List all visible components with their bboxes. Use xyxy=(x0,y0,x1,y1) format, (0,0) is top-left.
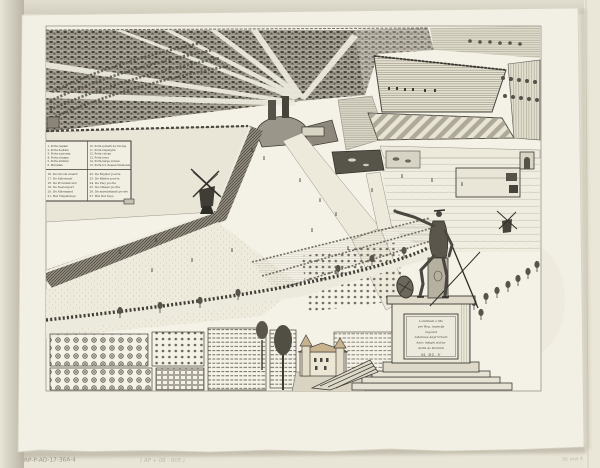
parterre-garden xyxy=(156,368,204,390)
svg-text:27. Het Dul huys: 27. Het Dul huys xyxy=(90,194,114,198)
svg-text:25. De Clissen poorte: 25. De Clissen poorte xyxy=(90,185,121,189)
orchard-plot xyxy=(50,334,148,366)
svg-text:dedit Ao Dominii: dedit Ao Dominii xyxy=(418,346,444,350)
svg-text:Londinum a Ma: Londinum a Ma xyxy=(418,319,443,323)
museum-scan: 1. Porta regiam 2. Porta hedram 3. Porta… xyxy=(0,0,600,468)
pedestal-base-molding xyxy=(383,362,479,372)
svg-text:per Reg. imperijs: per Reg. imperijs xyxy=(418,324,445,328)
legend-panel: 1. Porta regiam 2. Porta hedram 3. Porta… xyxy=(45,141,134,204)
svg-text:16. De Groote muerd: 16. De Groote muerd xyxy=(48,172,78,176)
pencil-inventory-number: RP-P-AO-17-36A-4 xyxy=(24,457,76,464)
svg-text:2. Porta hedram: 2. Porta hedram xyxy=(48,148,70,152)
monument-steps xyxy=(352,371,512,390)
svg-text:1. Porta regiam: 1. Porta regiam xyxy=(48,144,69,148)
svg-text:Iohannes Angl Vrbem: Iohannes Angl Vrbem xyxy=(414,335,448,339)
pedestal-shading xyxy=(460,303,470,363)
svg-text:regedat: regedat xyxy=(425,330,438,334)
svg-text:17. De Abberneyf: 17. De Abberneyf xyxy=(48,176,74,180)
svg-text:11. Porta bispelgrin: 11. Porta bispelgrin xyxy=(90,148,116,152)
svg-text:26. De maeckelandt poorte: 26. De maeckelandt poorte xyxy=(90,190,129,194)
fenced-enclosure xyxy=(456,168,520,197)
svg-text:14. Porta harge vicinal: 14. Porta harge vicinal xyxy=(90,159,120,163)
engraved-plate: 1. Porta regiam 2. Porta hedram 3. Porta… xyxy=(40,26,541,392)
gate-bridge xyxy=(302,127,324,136)
svg-text:24. De Vley poorte: 24. De Vley poorte xyxy=(90,181,117,185)
outbuilding xyxy=(47,117,59,128)
legend-corner-tab xyxy=(124,199,134,204)
orchard-plot xyxy=(50,368,152,390)
svg-text:20. De Abbemarst: 20. De Abbemarst xyxy=(48,190,74,194)
svg-text:18. De Providencerd: 18. De Providencerd xyxy=(48,181,77,185)
svg-text:12. Porta vulcan: 12. Porta vulcan xyxy=(90,152,112,156)
svg-text:hanc insigni statua: hanc insigni statua xyxy=(417,341,446,345)
orchard-plot-small xyxy=(152,332,204,366)
svg-text:10. Porta lysbeth de l'Gorge: 10. Porta lysbeth de l'Gorge xyxy=(90,144,127,148)
print-engraving: 1. Porta regiam 2. Porta hedram 3. Porta… xyxy=(0,0,600,468)
svg-text:5. Porta militum: 5. Porta militum xyxy=(48,159,70,163)
svg-text:22. De Reysler poorte: 22. De Reysler poorte xyxy=(90,172,121,176)
pencil-center-note: ( AP + 08 - 005 ) xyxy=(140,458,185,464)
small-gatehouse xyxy=(520,152,534,169)
svg-text:19. De Neeverport: 19. De Neeverport xyxy=(48,185,75,189)
statue-cap xyxy=(434,210,445,211)
svg-text:6. Murallen: 6. Murallen xyxy=(48,163,64,167)
svg-text:4. Porta slusana: 4. Porta slusana xyxy=(48,155,70,159)
svg-text:23. De Ridder poorte: 23. De Ridder poorte xyxy=(90,176,120,180)
svg-text:13. Porta heyn: 13. Porta heyn xyxy=(90,155,109,159)
svg-text:3. Porta equoram: 3. Porta equoram xyxy=(48,152,71,156)
svg-text:15. Porta for clessen timmeren: 15. Porta for clessen timmeren xyxy=(90,163,131,167)
crop-plot xyxy=(208,328,266,390)
pencil-corner-note: 5K mw 4 xyxy=(562,456,583,463)
svg-text:M. DC. V: M. DC. V xyxy=(421,353,441,357)
svg-text:21. Het Vlayshuleys: 21. Het Vlayshuleys xyxy=(48,194,77,198)
